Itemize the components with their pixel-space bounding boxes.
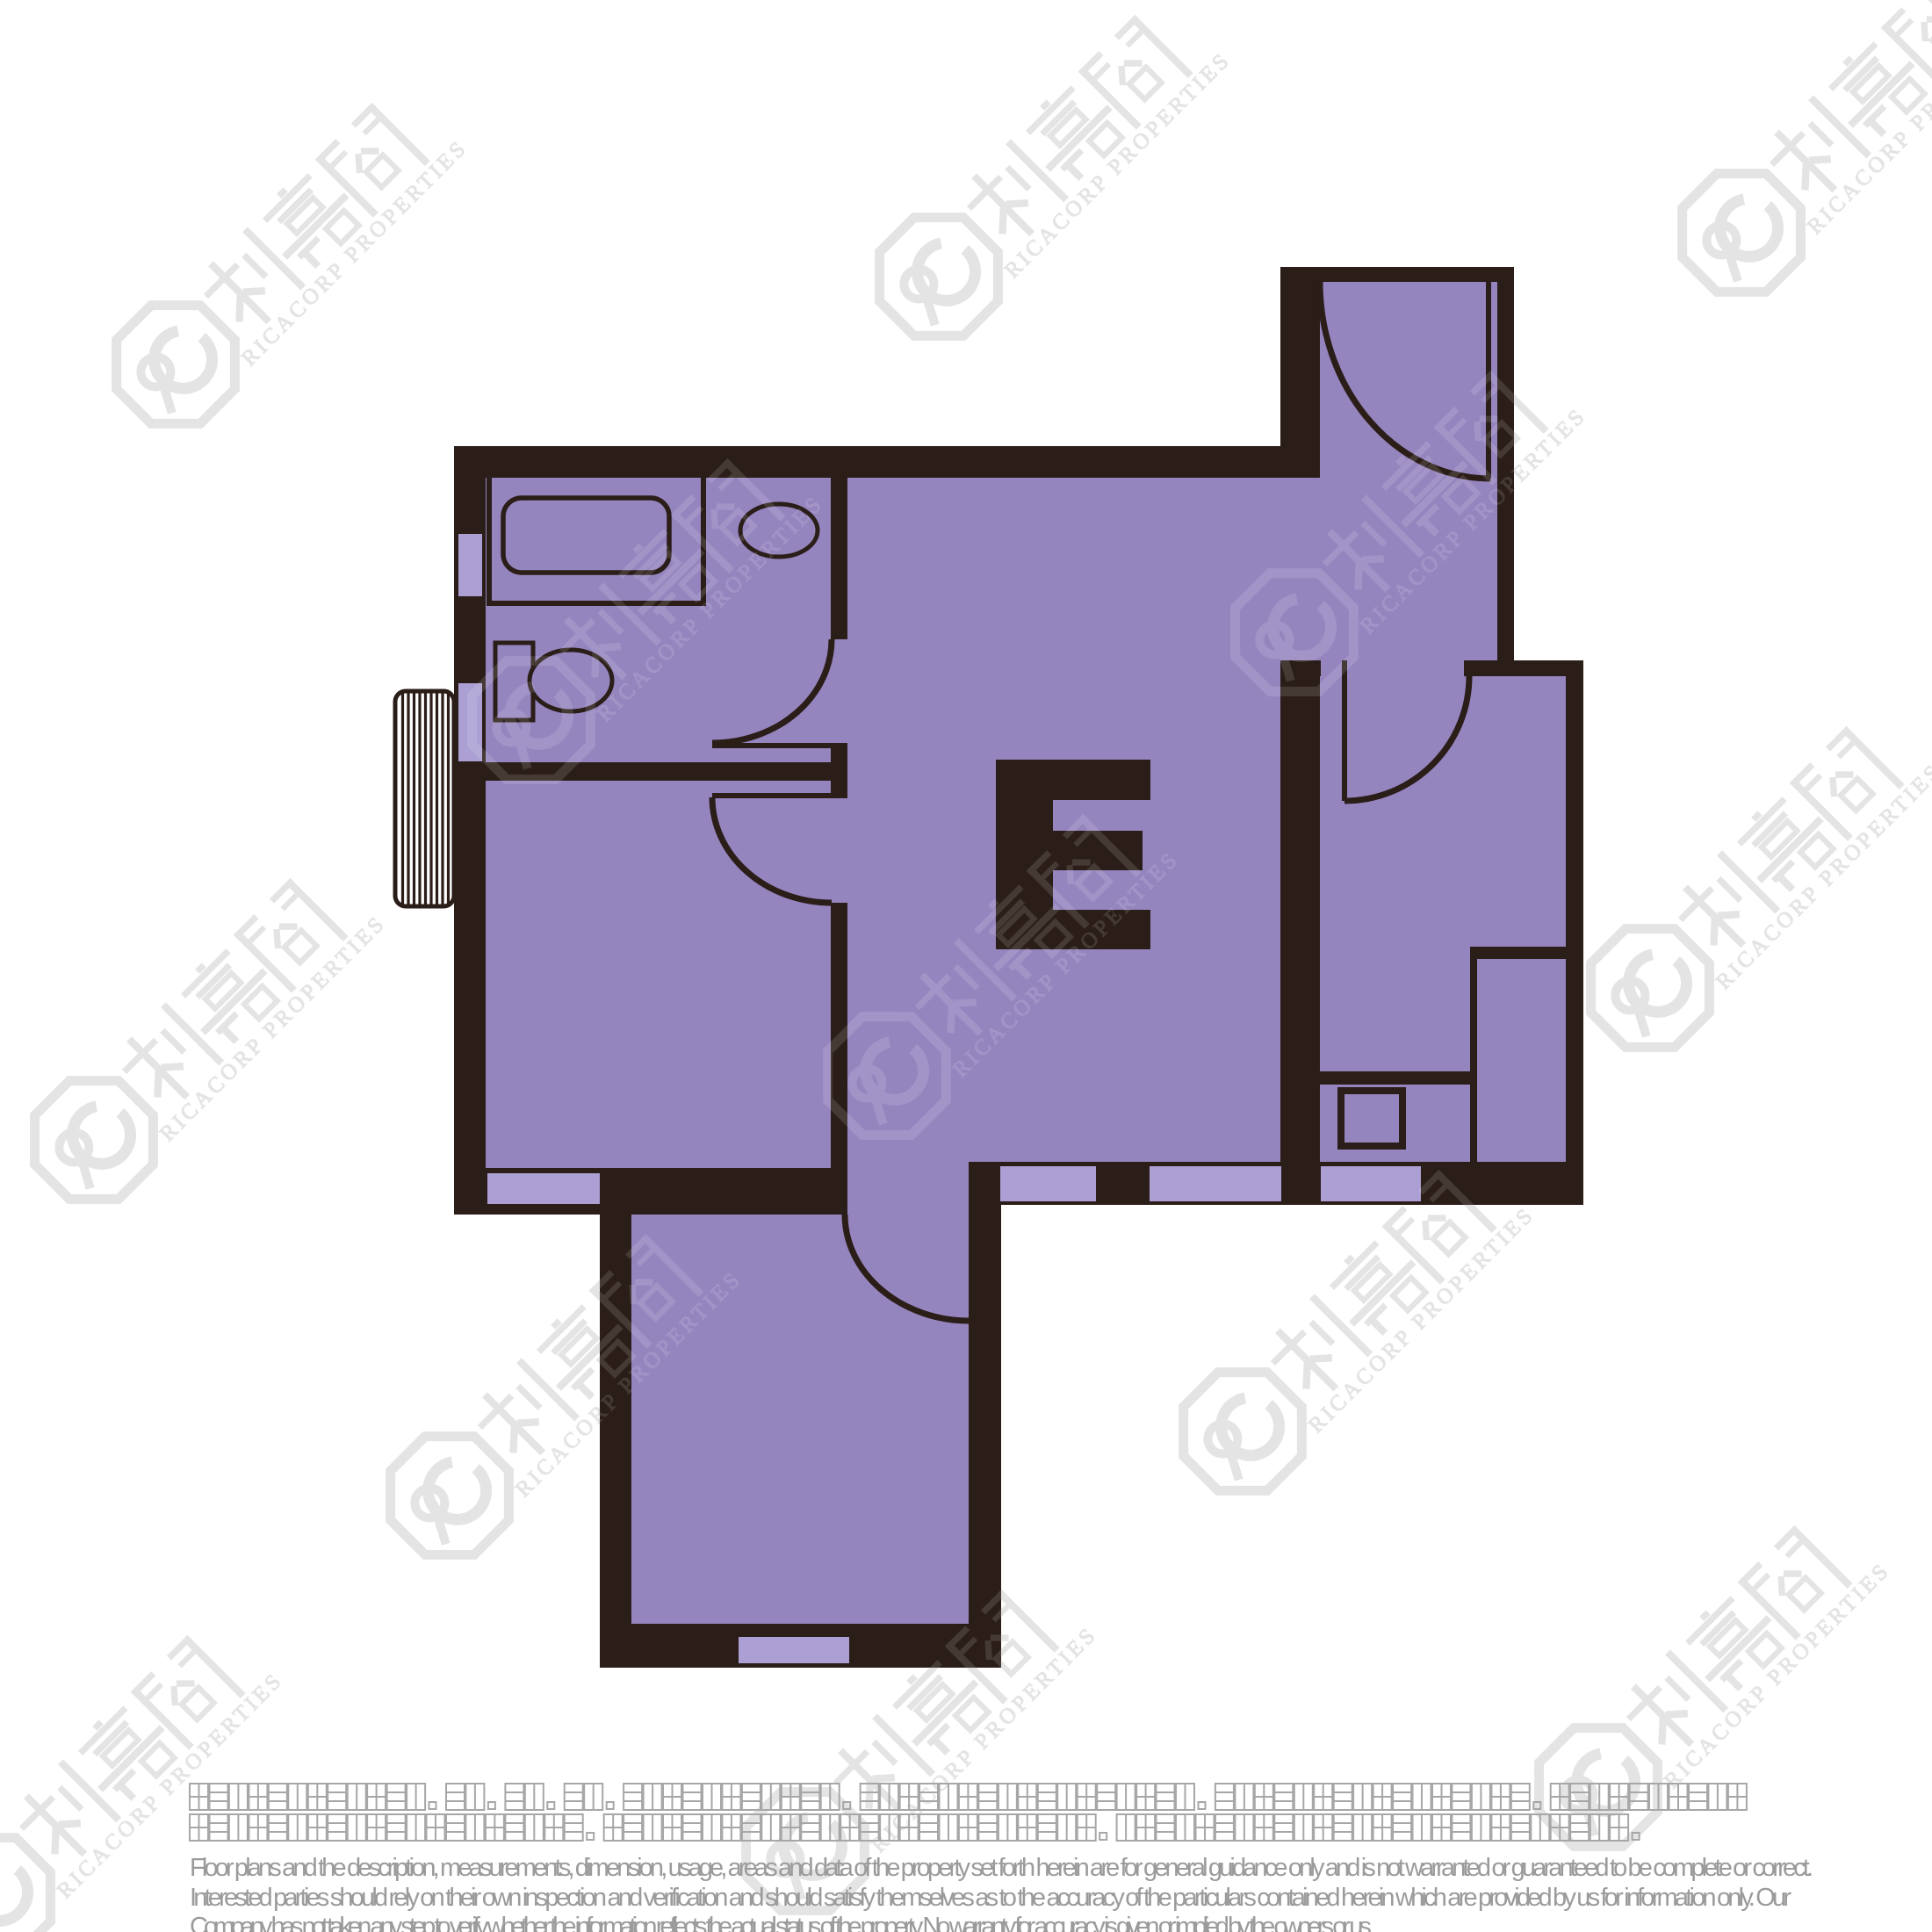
svg-text:Company has not taken any step: Company has not taken any step to verify… — [190, 1913, 1374, 1932]
svg-text:Floor plans and the descriptio: Floor plans and the description, measure… — [190, 1854, 1813, 1882]
svg-text:Interested parties should rely: Interested parties should rely on their … — [190, 1884, 1791, 1912]
